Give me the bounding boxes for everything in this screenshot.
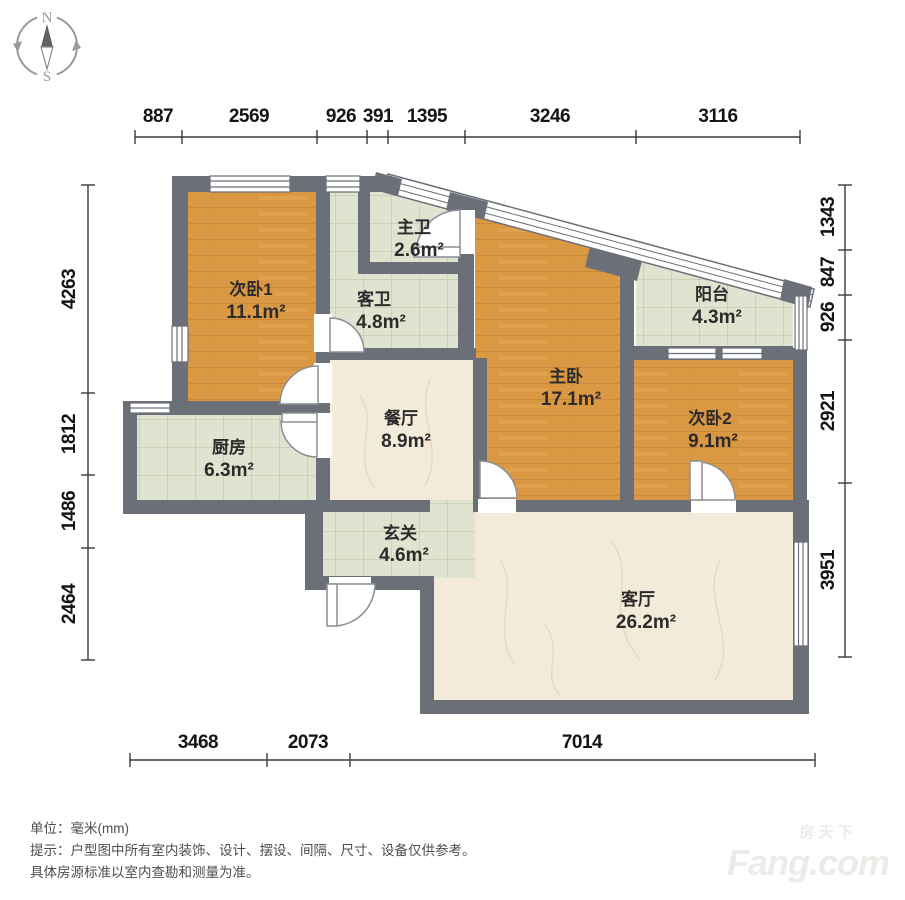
room-label-kitchen: 厨房 bbox=[212, 437, 246, 457]
kitchen-door-leaf bbox=[282, 413, 317, 422]
footer-tip-line1: 提示：户型图中所有室内装饰、设计、摆设、间隔、尺寸、设备仅供参考。 bbox=[30, 840, 476, 862]
fang-watermark-en: Fang.com bbox=[727, 842, 889, 884]
window-top-1 bbox=[210, 176, 290, 192]
compass-needle-south bbox=[41, 47, 53, 69]
room-area-guest-bath: 4.8m² bbox=[356, 312, 406, 333]
dim-top-4: 1395 bbox=[407, 106, 448, 127]
room-label-entry: 玄关 bbox=[383, 523, 417, 543]
floorplan-canvas: 次卧1 11.1m² 主卫 2.6m² 客卫 4.8m² 主卧 17.1m² 阳… bbox=[0, 0, 905, 900]
room-label-living: 客厅 bbox=[620, 589, 655, 609]
dim-right-2: 926 bbox=[818, 302, 839, 332]
room-area-master-bath: 2.6m² bbox=[394, 240, 444, 261]
window-balcony-right bbox=[795, 296, 807, 350]
dining-floor bbox=[328, 358, 475, 502]
room-area-living: 26.2m² bbox=[616, 612, 676, 633]
compass-east-arrow bbox=[72, 40, 81, 51]
room-area-kitchen: 6.3m² bbox=[204, 460, 254, 481]
compass-south-label: S bbox=[43, 69, 51, 85]
footer-unit-line: 单位：毫米(mm) bbox=[30, 818, 476, 840]
footer-tip-line2: 具体房源标准以室内查勘和测量为准。 bbox=[30, 862, 476, 884]
dim-right-3: 2921 bbox=[818, 390, 839, 431]
room-area-bedroom2: 11.1m² bbox=[226, 302, 285, 323]
dim-top-2: 926 bbox=[326, 106, 356, 127]
window-kitchen bbox=[130, 403, 170, 413]
dim-right-4: 3951 bbox=[818, 549, 839, 590]
dim-top-1: 2569 bbox=[229, 106, 269, 127]
window-top-2 bbox=[326, 176, 360, 192]
compass: N S bbox=[13, 6, 81, 86]
room-area-master-bedroom: 17.1m² bbox=[541, 389, 601, 410]
room-area-entry: 4.6m² bbox=[379, 545, 429, 566]
dim-left-2: 1486 bbox=[59, 491, 80, 531]
entry-door-leaf bbox=[327, 584, 337, 626]
dim-top-5: 3246 bbox=[530, 106, 570, 127]
room-area-balcony: 4.3m² bbox=[692, 307, 742, 328]
room-label-bedroom2: 次卧1 bbox=[229, 279, 272, 299]
room-label-dining: 餐厅 bbox=[384, 408, 418, 428]
bedroom3-door-leaf bbox=[690, 461, 702, 500]
room-area-bedroom3: 9.1m² bbox=[688, 431, 738, 452]
compass-needle-north bbox=[41, 24, 53, 47]
fang-watermark-cn: 房天下 bbox=[767, 821, 889, 842]
footer-disclaimer: 单位：毫米(mm) 提示：户型图中所有室内装饰、设计、摆设、间隔、尺寸、设备仅供… bbox=[30, 818, 476, 884]
dim-bottom-0: 3468 bbox=[178, 732, 218, 753]
floorplan-page: 次卧1 11.1m² 主卫 2.6m² 客卫 4.8m² 主卧 17.1m² 阳… bbox=[0, 0, 905, 900]
room-label-guest-bath: 客卫 bbox=[356, 289, 391, 309]
dim-right-0: 1343 bbox=[818, 197, 839, 237]
dim-left-0: 4263 bbox=[59, 269, 80, 309]
dim-left-1: 1812 bbox=[59, 414, 80, 454]
balcony-sliding-openings bbox=[668, 348, 762, 359]
dim-top-0: 887 bbox=[143, 106, 173, 127]
living-floor bbox=[432, 512, 793, 700]
dim-top-3: 391 bbox=[363, 106, 394, 127]
compass-west-arrow bbox=[13, 41, 22, 52]
fang-watermark: 房天下 Fang.com bbox=[727, 821, 889, 884]
room-area-dining: 8.9m² bbox=[381, 431, 431, 452]
dim-bottom-1: 2073 bbox=[288, 732, 328, 753]
entry-door bbox=[333, 584, 375, 626]
window-living-right bbox=[794, 542, 808, 646]
room-label-master-bath: 主卫 bbox=[397, 217, 431, 237]
dim-right-1: 847 bbox=[818, 257, 839, 287]
room-label-bedroom3: 次卧2 bbox=[688, 408, 731, 428]
room-label-balcony: 阳台 bbox=[695, 284, 729, 304]
dim-top-6: 3116 bbox=[698, 106, 737, 127]
room-label-master-bedroom: 主卧 bbox=[549, 366, 583, 386]
compass-north-label: N bbox=[42, 10, 53, 26]
window-left-bedroom2 bbox=[172, 326, 188, 362]
dim-bottom-2: 7014 bbox=[562, 732, 603, 753]
dim-left-3: 2464 bbox=[59, 583, 80, 624]
